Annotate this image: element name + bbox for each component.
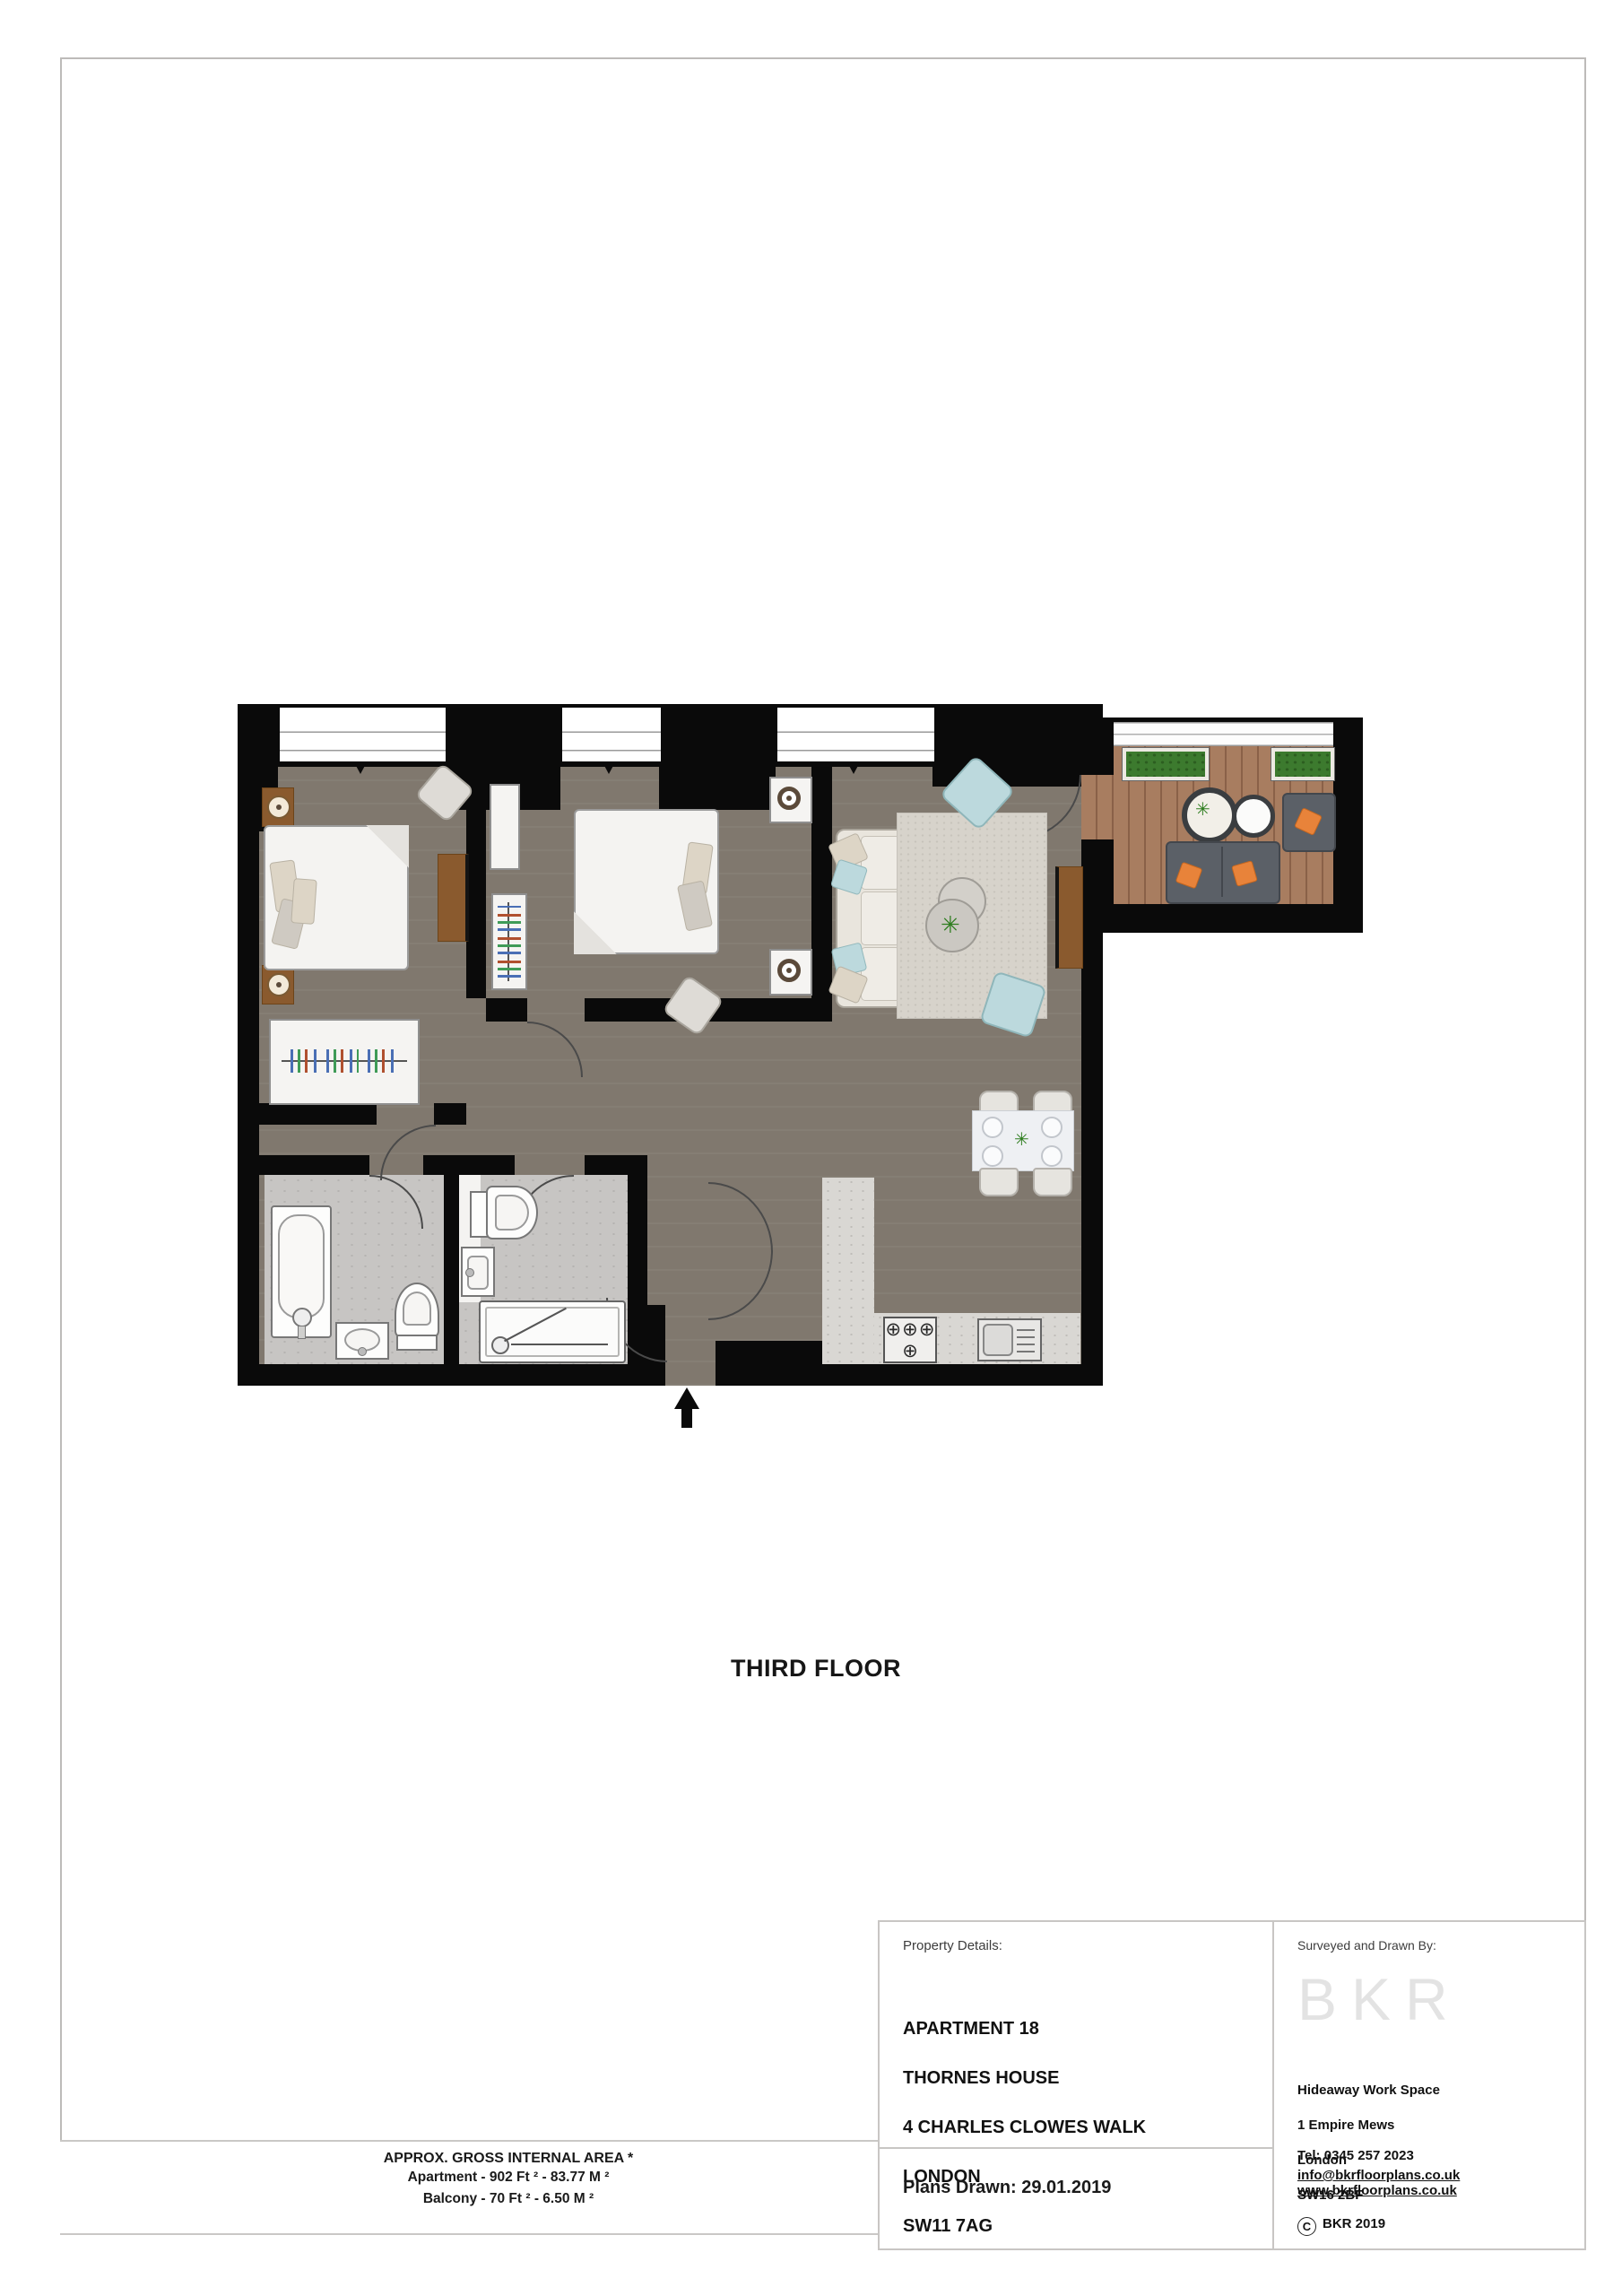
nightstand <box>769 949 812 996</box>
hangers-icon <box>368 1049 395 1073</box>
planter <box>1123 748 1209 780</box>
sofa <box>836 829 906 1008</box>
kitchen-counter-vertical <box>822 1178 874 1364</box>
kitchen-sink <box>977 1318 1042 1361</box>
area-summary-title: APPROX. GROSS INTERNAL AREA * <box>195 2151 822 2167</box>
entrance-arrow-stem <box>681 1408 692 1428</box>
nightstand <box>262 965 294 1004</box>
surveyor-website-link[interactable]: www.bkrfloorplans.co.uk <box>1297 2183 1460 2198</box>
cushion <box>1231 860 1258 887</box>
surveyor-email-link[interactable]: info@bkrfloorplans.co.uk <box>1297 2168 1460 2183</box>
bkr-logo: BKR <box>1297 1965 1462 2033</box>
duvet-fold <box>366 825 409 868</box>
hob <box>883 1317 937 1363</box>
window-marker-icon <box>847 762 860 774</box>
plant-icon <box>1195 801 1210 819</box>
balcony-door-threshold <box>1081 775 1114 839</box>
entrance-arrow-icon <box>674 1387 699 1409</box>
shower <box>479 1300 626 1363</box>
plant-icon <box>1014 1131 1029 1149</box>
window-living-room <box>776 708 936 761</box>
outdoor-chair <box>1282 793 1336 852</box>
desk-bedroom-2 <box>490 784 520 870</box>
surveyor-tel: Tel: 0345 257 2023 <box>1297 2148 1414 2163</box>
wardrobe-bedroom-1 <box>269 1019 420 1105</box>
outdoor-sofa <box>1166 841 1280 904</box>
burner-icon <box>886 1320 902 1339</box>
pillow <box>291 878 317 925</box>
burner-icon <box>902 1342 918 1361</box>
surveyor-address-line: Hideaway Work Space <box>1297 2082 1440 2100</box>
bath-tap-icon <box>292 1308 312 1327</box>
window-bedroom-1 <box>278 708 447 761</box>
bathtub <box>271 1205 332 1338</box>
bed-1 <box>264 825 409 970</box>
copyright-text: BKR 2019 <box>1323 2216 1385 2231</box>
duvet-fold <box>574 911 617 954</box>
wall-entrance-right <box>716 1341 823 1364</box>
lamp-icon <box>267 796 291 819</box>
place-setting <box>982 1117 1003 1138</box>
hangers-icon <box>291 1049 317 1073</box>
plant-icon <box>941 913 960 936</box>
nightstand <box>769 777 812 823</box>
dining-chair <box>1033 1168 1072 1196</box>
area-summary-row: APPROX. GROSS INTERNAL AREA * Apartment … <box>60 2140 878 2235</box>
burner-icon <box>902 1320 918 1339</box>
place-setting <box>1041 1117 1063 1138</box>
sofa-cushion <box>861 836 900 890</box>
address-line: 4 CHARLES CLOWES WALK <box>903 2116 1146 2141</box>
plans-drawn-cell: Plans Drawn: 29.01.2019 <box>880 2147 1272 2250</box>
lamp-icon <box>267 973 291 996</box>
area-balcony-line: Balcony - 70 Ft ² - 6.50 M ² <box>195 2188 822 2210</box>
toilet-seat <box>495 1195 529 1231</box>
ensuite-sink <box>461 1247 495 1297</box>
coffee-table <box>925 899 979 952</box>
bed-2 <box>574 809 719 954</box>
bathroom-sink <box>335 1322 389 1360</box>
window-bedroom-2 <box>560 708 663 761</box>
plans-drawn: Plans Drawn: 29.01.2019 <box>903 2178 1111 2198</box>
nightstand <box>262 787 294 827</box>
hangers-icon <box>498 906 521 978</box>
copyright-icon: C <box>1297 2217 1316 2236</box>
floor-plan <box>0 0 1622 1525</box>
floor-label: THIRD FLOOR <box>538 1655 1094 1683</box>
sofa-cushion <box>861 947 900 1001</box>
sink-tap-icon <box>358 1347 367 1356</box>
wall-bathrooms-divider <box>444 1155 459 1364</box>
toilet-seat <box>403 1291 431 1326</box>
wall-pier <box>659 761 776 810</box>
wall-ensuite-top-stub <box>585 1155 628 1175</box>
lamp-icon <box>777 959 801 982</box>
sink-bowl <box>983 1324 1013 1356</box>
surveyor-links: info@bkrfloorplans.co.uk www.bkrfloorpla… <box>1297 2168 1460 2198</box>
cushion <box>1175 862 1203 890</box>
place-setting <box>982 1145 1003 1167</box>
dining-chair <box>979 1168 1019 1196</box>
bath-tap-stem <box>298 1326 306 1339</box>
sofa-cushion <box>861 891 900 945</box>
wall-bed2-living <box>811 767 832 998</box>
tv-dresser-bedroom-1 <box>438 854 469 942</box>
burner-icon <box>919 1320 935 1339</box>
property-details-label: Property Details: <box>903 1938 1002 1953</box>
balcony-railing <box>1114 722 1333 746</box>
toilet-cistern <box>396 1335 438 1351</box>
cushion <box>1294 807 1323 836</box>
lamp-icon <box>777 787 801 810</box>
hangers-icon <box>326 1049 359 1073</box>
property-details-cell: Property Details: APARTMENT 18 THORNES H… <box>880 1922 1272 2147</box>
window-marker-icon <box>354 762 367 774</box>
balcony-table <box>1182 787 1237 843</box>
address-line: THORNES HOUSE <box>903 2066 1146 2092</box>
title-block: Property Details: APARTMENT 18 THORNES H… <box>878 1920 1586 2250</box>
wall-bed1-bed2-divider <box>466 767 486 998</box>
outdoor-sofa-split <box>1221 847 1223 897</box>
window-marker-icon <box>603 762 615 774</box>
surveyor-cell: Surveyed and Drawn By: BKR Hideaway Work… <box>1274 1922 1584 2248</box>
wardrobe-bedroom-2 <box>491 893 527 990</box>
tv-unit-living <box>1055 866 1083 969</box>
toilet-2 <box>486 1186 538 1239</box>
wall-ensuite-top <box>459 1155 515 1175</box>
bathtub-basin <box>278 1214 325 1318</box>
shower-glass-line <box>511 1344 608 1345</box>
surveyor-address-line: 1 Empire Mews <box>1297 2117 1440 2135</box>
entrance-opening <box>665 1359 716 1386</box>
sink-tap-icon <box>465 1268 474 1277</box>
balcony-table <box>1232 795 1275 838</box>
planter <box>1271 748 1334 780</box>
address-line: APARTMENT 18 <box>903 2017 1146 2042</box>
area-summary-text: APPROX. GROSS INTERNAL AREA * Apartment … <box>195 2151 822 2210</box>
area-apartment-line: Apartment - 902 Ft ² - 83.77 M ² <box>195 2167 822 2188</box>
wall-bed2-bottom-left <box>486 998 527 1022</box>
pillow <box>677 880 713 931</box>
surveyor-label: Surveyed and Drawn By: <box>1297 1938 1436 1952</box>
wall-bed1-bottom <box>259 1103 377 1125</box>
sink-drainer <box>1017 1326 1035 1352</box>
copyright: CBKR 2019 <box>1297 2216 1385 2236</box>
wall-bathroom1-top <box>259 1155 369 1175</box>
place-setting <box>1041 1145 1063 1167</box>
dining-table <box>972 1110 1074 1171</box>
toilet-1 <box>395 1283 439 1338</box>
wall-bed1-bottom-stub <box>434 1103 466 1125</box>
